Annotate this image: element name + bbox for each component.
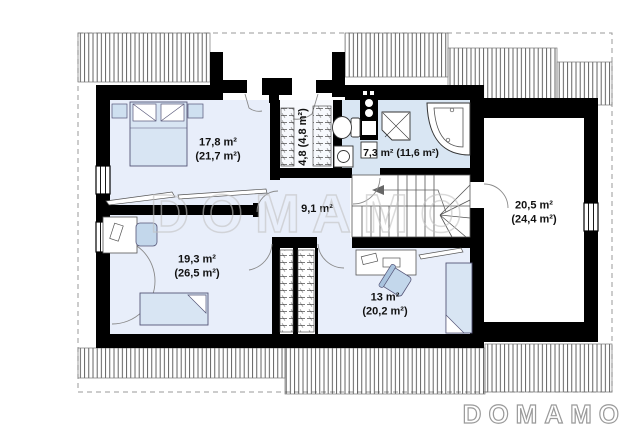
floor-plan-page: 17,8 m² (21,7 m²) 4,8 (4,8 m²) 7,3 m² (1… xyxy=(0,0,640,434)
room-label-bedroom: 17,8 m² (21,7 m²) xyxy=(195,136,240,165)
chair-icon xyxy=(136,223,157,246)
washer-icon xyxy=(334,146,353,167)
shower-icon xyxy=(382,112,410,140)
window-left-1 xyxy=(96,166,110,194)
room-area: 20,5 m² xyxy=(511,199,556,213)
room-area: 13 m² xyxy=(362,291,407,305)
double-bed-icon xyxy=(130,102,187,166)
room-area: 19,3 m² xyxy=(174,253,219,267)
chimney xyxy=(262,78,292,95)
room-area-total: (20,2 m²) xyxy=(362,305,407,319)
room-label-hall: 9,1 m² xyxy=(301,202,333,216)
toilet-icon xyxy=(333,117,361,139)
room-label-bathroom: 7,3 m² (11,6 m²) xyxy=(363,147,439,161)
room-area-total: (26,5 m²) xyxy=(174,267,219,281)
room-label-garage-room: 20,5 m² (24,4 m²) xyxy=(511,199,556,228)
room-label-room-left: 19,3 m² (26,5 m²) xyxy=(174,253,219,282)
room-area: 17,8 m² xyxy=(195,136,240,150)
nightstand-icon xyxy=(112,104,127,118)
room-area-total: (24,4 m²) xyxy=(511,213,556,227)
single-bed-icon xyxy=(140,293,208,325)
domamo-logo: DOMAMO xyxy=(463,399,626,430)
staircase xyxy=(352,175,470,237)
room-area-total: (21,7 m²) xyxy=(195,150,240,164)
door-gap-garage xyxy=(470,182,484,208)
nightstand-icon xyxy=(188,104,203,118)
room-label-wardrobe: 4,8 (4,8 m²) xyxy=(296,108,310,165)
room-label-room-right: 13 m² (20,2 m²) xyxy=(362,291,407,320)
window-garage-right xyxy=(584,203,598,231)
single-bed-icon xyxy=(446,263,472,333)
